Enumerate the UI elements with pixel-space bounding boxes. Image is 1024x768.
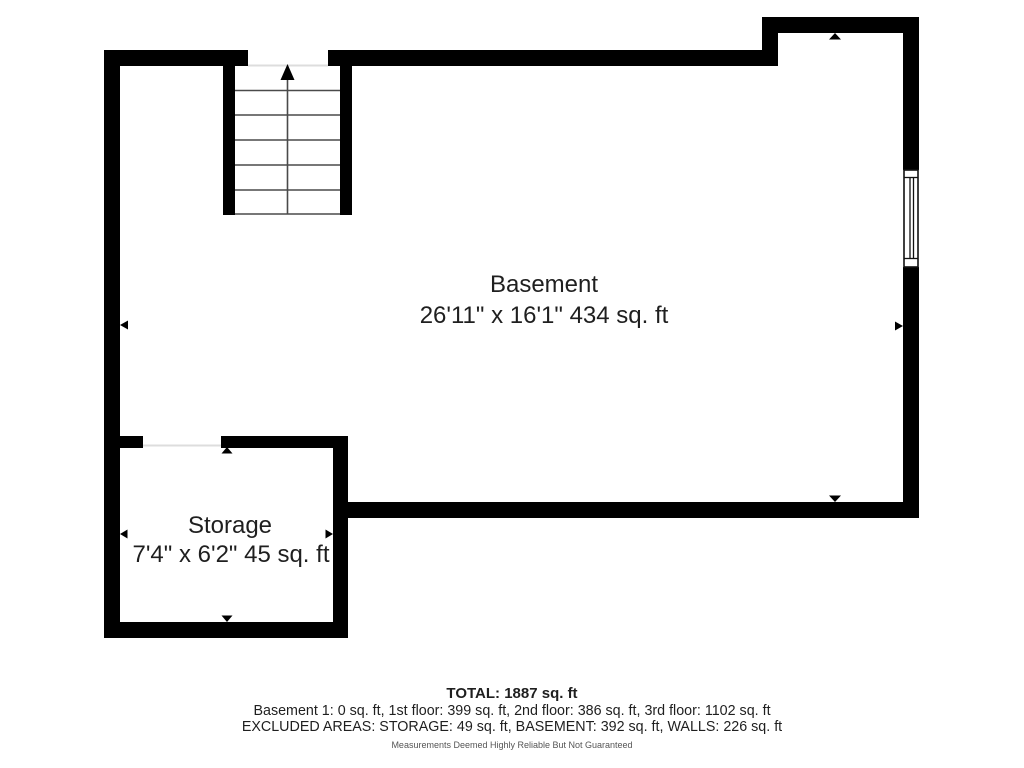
basement-left-arrow-icon bbox=[120, 321, 128, 330]
total-area-text: TOTAL: 1887 sq. ft bbox=[446, 685, 577, 702]
basement-room-dimensions: 26'11" x 16'1" 434 sq. ft bbox=[420, 302, 669, 329]
storage-top-wall-left bbox=[104, 436, 143, 448]
basement-up-arrow-icon bbox=[829, 33, 841, 40]
right-wall-below-window bbox=[903, 267, 919, 518]
basement-down-arrow-icon bbox=[829, 496, 841, 503]
right-wall-above-window bbox=[903, 17, 919, 170]
storage-top-wall-right bbox=[221, 436, 348, 448]
basement-right-arrow-icon bbox=[895, 322, 903, 331]
storage-bottom-wall bbox=[104, 622, 348, 638]
stair-right-wall bbox=[340, 66, 352, 215]
top-wall-left-segment bbox=[104, 50, 248, 66]
floorplan-page: Basement 26'11" x 16'1" 434 sq. ft Stora… bbox=[0, 0, 1024, 768]
footer-summary: TOTAL: 1887 sq. ft Basement 1: 0 sq. ft,… bbox=[242, 685, 782, 750]
floor-areas-text: Basement 1: 0 sq. ft, 1st floor: 399 sq.… bbox=[253, 703, 770, 719]
window-frame bbox=[904, 170, 918, 267]
top-wall-right-segment bbox=[328, 50, 778, 66]
floorplan-canvas: Basement 26'11" x 16'1" 434 sq. ft Stora… bbox=[0, 0, 1024, 768]
left-wall bbox=[104, 50, 120, 638]
stair-left-wall bbox=[223, 66, 235, 215]
storage-down-arrow-icon bbox=[222, 616, 233, 623]
storage-right-wall bbox=[333, 436, 348, 638]
storage-right-arrow-icon bbox=[326, 530, 334, 539]
storage-left-arrow-icon bbox=[120, 530, 128, 539]
storage-room-dimensions: 7'4" x 6'2" 45 sq. ft bbox=[133, 541, 330, 568]
excluded-areas-text: EXCLUDED AREAS: STORAGE: 49 sq. ft, BASE… bbox=[242, 719, 782, 735]
window-icon bbox=[904, 170, 918, 267]
disclaimer-text: Measurements Deemed Highly Reliable But … bbox=[391, 740, 632, 750]
storage-room-label: Storage bbox=[188, 512, 272, 539]
upper-top-wall bbox=[762, 17, 919, 33]
staircase bbox=[235, 64, 340, 214]
bottom-wall-main bbox=[333, 502, 919, 518]
basement-room-label: Basement bbox=[490, 271, 598, 298]
